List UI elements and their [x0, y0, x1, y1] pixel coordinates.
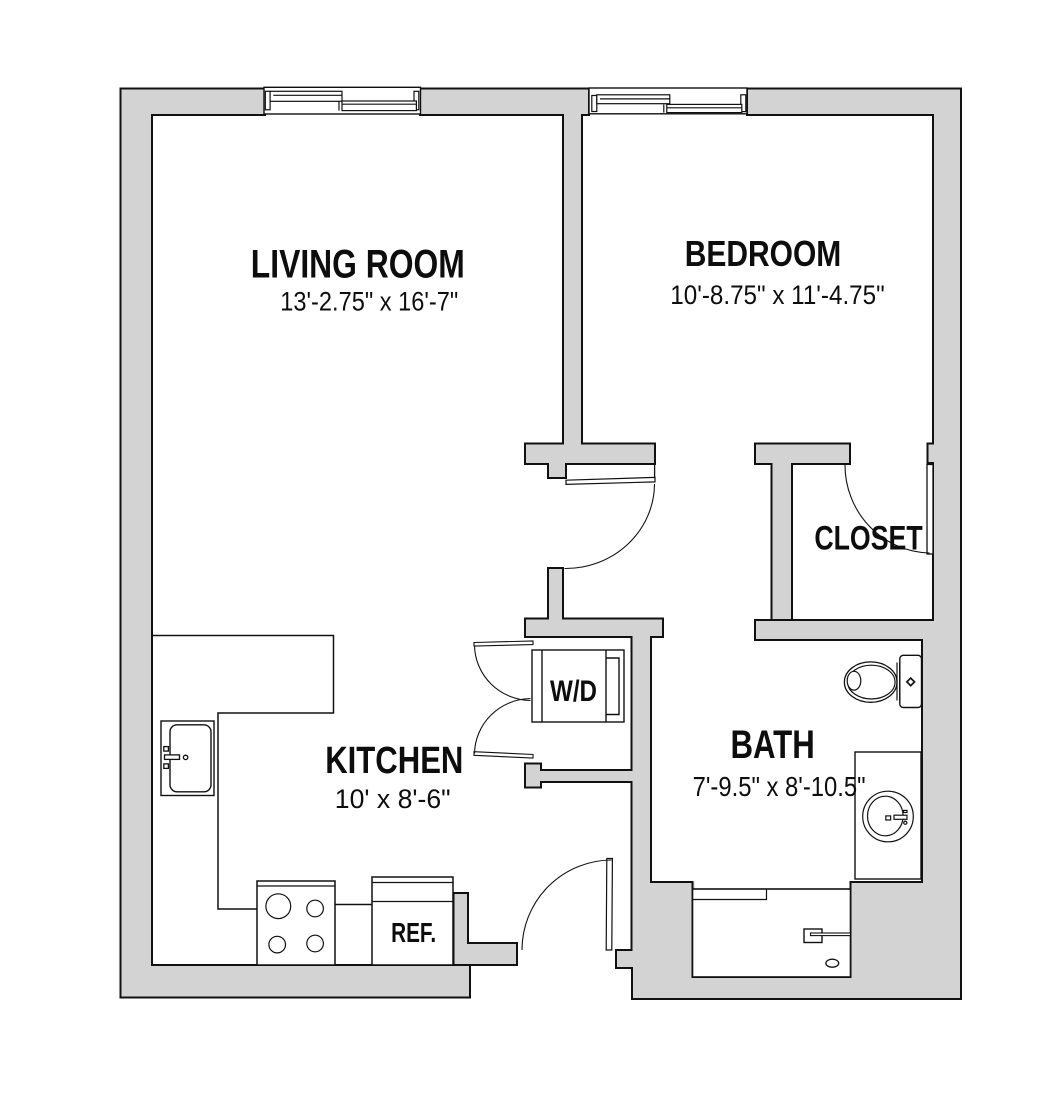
svg-text:10' x 8'-6": 10' x 8'-6" — [335, 784, 451, 814]
svg-text:W/D: W/D — [550, 675, 597, 708]
svg-text:BATH: BATH — [730, 723, 814, 767]
svg-text:LIVING ROOM: LIVING ROOM — [251, 243, 465, 287]
svg-text:BEDROOM: BEDROOM — [685, 233, 842, 274]
svg-text:13'-2.75" x 16'-7": 13'-2.75" x 16'-7" — [280, 287, 458, 317]
svg-text:KITCHEN: KITCHEN — [325, 740, 463, 782]
svg-text:CLOSET: CLOSET — [814, 520, 922, 558]
svg-text:REF.: REF. — [391, 917, 436, 948]
svg-text:7'-9.5" x 8'-10.5": 7'-9.5" x 8'-10.5" — [693, 771, 866, 802]
svg-text:10'-8.75" x 11'-4.75": 10'-8.75" x 11'-4.75" — [670, 280, 884, 310]
